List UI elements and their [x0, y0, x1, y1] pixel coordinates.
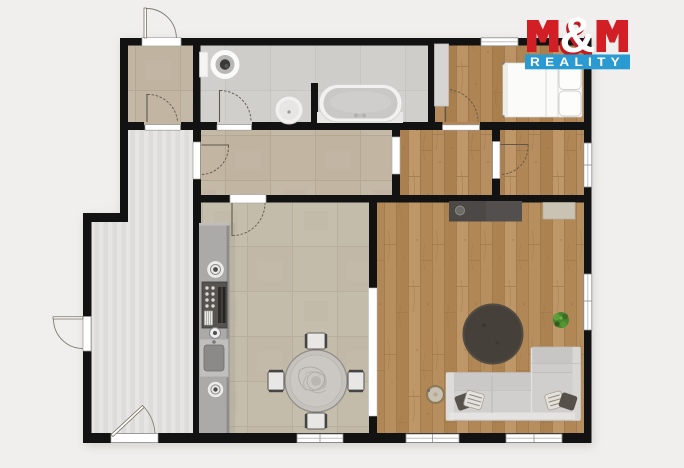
svg-text:REALITY: REALITY	[530, 57, 625, 69]
